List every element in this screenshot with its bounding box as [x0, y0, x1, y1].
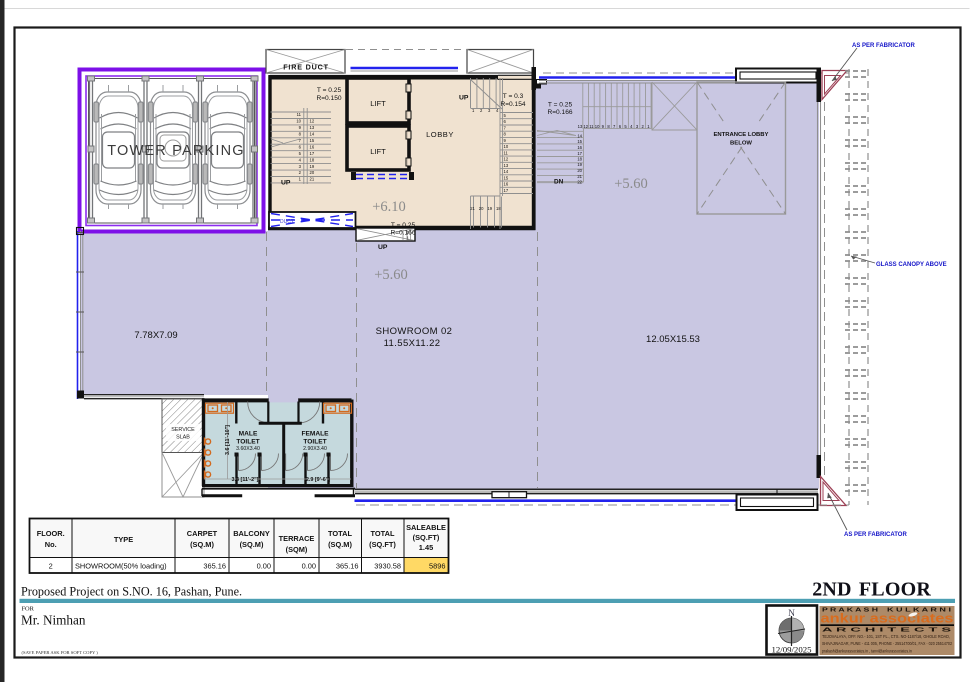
svg-text:0.00: 0.00 — [302, 562, 316, 571]
svg-text:3.4 [11'-2"]: 3.4 [11'-2"] — [232, 477, 259, 483]
svg-text:11: 11 — [297, 112, 302, 117]
svg-text:7.78X7.09: 7.78X7.09 — [134, 330, 177, 341]
svg-text:19: 19 — [310, 164, 315, 169]
svg-text:SALEABLE: SALEABLE — [406, 523, 446, 532]
svg-text:UP: UP — [281, 180, 291, 187]
svg-text:(SQM): (SQM) — [286, 545, 308, 554]
svg-text:(SQ.M): (SQ.M) — [190, 540, 214, 549]
svg-text:12.05X15.53: 12.05X15.53 — [646, 334, 700, 345]
svg-text:13: 13 — [578, 124, 583, 129]
svg-text:15: 15 — [310, 138, 315, 143]
svg-text:21: 21 — [470, 206, 475, 211]
svg-text:1.45: 1.45 — [419, 543, 433, 552]
svg-text:12: 12 — [504, 157, 509, 162]
svg-text:19: 19 — [487, 206, 492, 211]
svg-text:17: 17 — [577, 151, 582, 156]
svg-text:12/09/2025: 12/09/2025 — [771, 645, 812, 655]
svg-text:365.16: 365.16 — [203, 562, 226, 571]
svg-text:18: 18 — [496, 206, 501, 211]
svg-text:SLAB: SLAB — [176, 435, 190, 441]
svg-text:No.: No. — [45, 540, 57, 549]
svg-text:13: 13 — [504, 163, 509, 168]
svg-text:FIRE DUCT: FIRE DUCT — [283, 63, 329, 72]
svg-text:20: 20 — [577, 168, 582, 173]
svg-text:13: 13 — [310, 125, 315, 130]
svg-text:LOBBY: LOBBY — [426, 130, 454, 139]
svg-text:+5.60: +5.60 — [614, 176, 648, 192]
svg-text:21: 21 — [577, 174, 582, 179]
svg-text:BELOW: BELOW — [730, 141, 752, 147]
svg-text:22: 22 — [577, 180, 582, 185]
svg-text:10: 10 — [504, 144, 509, 149]
svg-text:TEJOVALAYA, OFF. NO.- 101, 1ST: TEJOVALAYA, OFF. NO.- 101, 1ST FL., CTS.… — [822, 634, 950, 639]
svg-text:GLASS CANOPY ABOVE: GLASS CANOPY ABOVE — [876, 262, 947, 268]
svg-text:CARPET: CARPET — [187, 529, 218, 538]
svg-text:19: 19 — [577, 162, 582, 167]
svg-text:(SAVE PAPER ASK FOR SOFT COPY: (SAVE PAPER ASK FOR SOFT COPY ) — [22, 650, 99, 655]
svg-text:DN: DN — [554, 179, 564, 186]
svg-text:UP: UP — [378, 244, 388, 251]
svg-text:3.6 [11'-10"]: 3.6 [11'-10"] — [225, 425, 231, 455]
svg-text:10: 10 — [595, 124, 600, 129]
svg-text:(SQ.FT): (SQ.FT) — [413, 533, 440, 542]
svg-text:MALE: MALE — [239, 431, 258, 438]
svg-text:SERVICE: SERVICE — [171, 427, 195, 433]
svg-text:10: 10 — [296, 119, 301, 124]
svg-text:FLOOR.: FLOOR. — [37, 529, 65, 538]
svg-text:12: 12 — [310, 119, 315, 124]
svg-text:T = 0.25: T = 0.25 — [391, 222, 416, 229]
svg-text:Mr. Nimhan: Mr. Nimhan — [21, 613, 86, 628]
svg-text:15: 15 — [504, 175, 509, 180]
svg-text:Proposed Project on S.NO. 16,: Proposed Project on S.NO. 16, Pashan, Pu… — [21, 585, 242, 599]
svg-text:0.00: 0.00 — [257, 562, 271, 571]
svg-text:prakash@ankurassociates.in , t: prakash@ankurassociates.in , tanvi@ankur… — [822, 649, 912, 654]
svg-text:18: 18 — [577, 157, 582, 162]
svg-text:18: 18 — [310, 157, 315, 162]
svg-text:FOR: FOR — [22, 606, 35, 613]
svg-text:AS PER FABRICATOR: AS PER FABRICATOR — [852, 43, 915, 49]
svg-text:2: 2 — [49, 562, 53, 571]
svg-text:(SQ.M): (SQ.M) — [328, 540, 352, 549]
svg-text:14: 14 — [577, 134, 582, 139]
svg-text:TOILET: TOILET — [303, 439, 326, 446]
svg-text:2ND FLOOR: 2ND FLOOR — [812, 579, 931, 601]
svg-text:15: 15 — [577, 139, 582, 144]
svg-text:TOILET: TOILET — [236, 439, 259, 446]
svg-text:R=0.166: R=0.166 — [547, 109, 572, 116]
svg-text:12: 12 — [583, 124, 588, 129]
svg-text:365.16: 365.16 — [336, 562, 359, 571]
svg-text:+6.10: +6.10 — [372, 199, 406, 215]
svg-text:(SQ.M): (SQ.M) — [240, 540, 264, 549]
svg-text:17: 17 — [310, 151, 315, 156]
svg-text:5896: 5896 — [429, 562, 445, 571]
svg-text:2.90X3.40: 2.90X3.40 — [303, 446, 327, 452]
svg-text:SHIVAJINAGAR, PUNE - 411 005,: SHIVAJINAGAR, PUNE - 411 005, PHONE - 25… — [822, 641, 952, 646]
svg-text:3.60X3.40: 3.60X3.40 — [236, 446, 260, 452]
svg-text:T = 0.25: T = 0.25 — [548, 102, 573, 109]
svg-text:(SQ.FT): (SQ.FT) — [369, 540, 396, 549]
svg-text:2.9 [9'-6"]: 2.9 [9'-6"] — [306, 477, 330, 483]
svg-text:17: 17 — [504, 188, 509, 193]
svg-text:20: 20 — [310, 170, 315, 175]
svg-text:LIFT: LIFT — [370, 147, 386, 156]
svg-text:TOTAL: TOTAL — [328, 529, 352, 538]
svg-text:14: 14 — [310, 132, 315, 137]
svg-text:UP: UP — [459, 95, 469, 102]
svg-text:16: 16 — [504, 182, 509, 187]
svg-text:14: 14 — [504, 169, 509, 174]
svg-text:21: 21 — [310, 177, 315, 182]
svg-text:16: 16 — [577, 145, 582, 150]
svg-text:SHOWROOM 02: SHOWROOM 02 — [376, 326, 453, 337]
svg-text:TERRACE: TERRACE — [279, 534, 315, 543]
svg-text:AS PER FABRICATOR: AS PER FABRICATOR — [844, 532, 907, 538]
svg-text:FEMALE: FEMALE — [301, 431, 329, 438]
svg-text:R=0.150: R=0.150 — [316, 95, 341, 102]
svg-text:TYPE: TYPE — [114, 535, 133, 544]
svg-text:16: 16 — [310, 144, 315, 149]
svg-text:11.55X11.22: 11.55X11.22 — [384, 338, 441, 349]
svg-text:T = 0.3: T = 0.3 — [503, 93, 524, 100]
svg-text:SHOWROOM(50% loading): SHOWROOM(50% loading) — [75, 562, 167, 571]
svg-text:BALCONY: BALCONY — [233, 529, 270, 538]
svg-text:ENTRANCE LOBBY: ENTRANCE LOBBY — [714, 132, 769, 138]
svg-text:20: 20 — [479, 206, 484, 211]
svg-text:3930.58: 3930.58 — [374, 562, 401, 571]
svg-text:11: 11 — [589, 124, 594, 129]
svg-text:LIFT: LIFT — [370, 99, 386, 108]
svg-text:+5.60: +5.60 — [374, 267, 408, 283]
svg-text:R=0.154: R=0.154 — [500, 101, 525, 108]
svg-text:T = 0.25: T = 0.25 — [317, 87, 342, 94]
svg-text:A R C H I T E C T S: A R C H I T E C T S — [822, 628, 952, 634]
svg-text:TOTAL: TOTAL — [371, 529, 395, 538]
svg-text:11: 11 — [504, 150, 509, 155]
svg-text:R=0.166: R=0.166 — [390, 230, 415, 237]
svg-text:DUCT: DUCT — [280, 219, 294, 225]
svg-text:TOWER PARKING: TOWER PARKING — [107, 143, 245, 159]
svg-text:ankur associates: ankur associates — [821, 612, 954, 626]
